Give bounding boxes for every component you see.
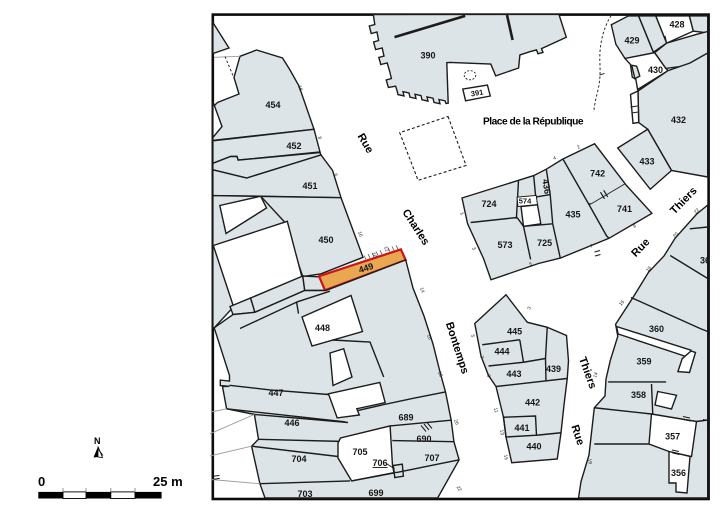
svg-text:704: 704 bbox=[291, 454, 306, 464]
svg-text:358: 358 bbox=[631, 390, 646, 400]
svg-text:699: 699 bbox=[368, 488, 383, 498]
svg-text:451: 451 bbox=[302, 181, 317, 191]
svg-text:14: 14 bbox=[418, 287, 426, 294]
svg-text:20: 20 bbox=[452, 419, 460, 426]
svg-text:428: 428 bbox=[669, 20, 684, 30]
svg-text:8: 8 bbox=[316, 136, 323, 141]
svg-text:690: 690 bbox=[416, 434, 431, 444]
svg-text:703: 703 bbox=[297, 489, 312, 499]
svg-text:1: 1 bbox=[458, 211, 465, 216]
svg-text:430: 430 bbox=[648, 65, 663, 75]
svg-text:12: 12 bbox=[382, 246, 390, 254]
svg-text:9: 9 bbox=[632, 223, 637, 230]
svg-text:439: 439 bbox=[546, 364, 561, 374]
svg-text:Charles: Charles bbox=[399, 207, 431, 247]
svg-text:11: 11 bbox=[492, 407, 499, 413]
svg-text:5: 5 bbox=[469, 334, 476, 338]
svg-text:574: 574 bbox=[519, 197, 532, 206]
svg-text:360: 360 bbox=[649, 324, 664, 334]
svg-text:3: 3 bbox=[526, 306, 533, 311]
svg-text:Rue: Rue bbox=[629, 236, 652, 259]
svg-text:357: 357 bbox=[665, 432, 680, 442]
svg-text:725: 725 bbox=[537, 238, 552, 248]
svg-text:433: 433 bbox=[639, 157, 654, 167]
svg-text:Rue: Rue bbox=[355, 132, 376, 156]
svg-text:442: 442 bbox=[525, 398, 540, 408]
svg-text:443: 443 bbox=[506, 369, 521, 379]
svg-text:432: 432 bbox=[671, 115, 686, 125]
svg-text:16: 16 bbox=[356, 231, 363, 238]
svg-text:452: 452 bbox=[286, 141, 301, 151]
svg-text:359: 359 bbox=[636, 357, 651, 367]
svg-text:25 m: 25 m bbox=[153, 474, 183, 489]
svg-text:447: 447 bbox=[268, 388, 283, 398]
svg-text:13: 13 bbox=[498, 429, 505, 436]
svg-text:16: 16 bbox=[618, 299, 626, 307]
svg-text:435: 435 bbox=[565, 210, 580, 220]
svg-text:4: 4 bbox=[552, 155, 557, 162]
svg-text:390: 390 bbox=[420, 51, 435, 61]
svg-text:742: 742 bbox=[590, 169, 605, 179]
svg-text:Bontemps: Bontemps bbox=[443, 321, 471, 376]
svg-text:741: 741 bbox=[617, 204, 632, 214]
svg-text:448: 448 bbox=[315, 323, 330, 333]
svg-text:454: 454 bbox=[265, 100, 280, 110]
svg-text:36: 36 bbox=[700, 256, 710, 266]
svg-text:724: 724 bbox=[481, 199, 496, 209]
svg-text:705: 705 bbox=[352, 447, 367, 457]
svg-text:706: 706 bbox=[372, 458, 387, 468]
svg-text:0: 0 bbox=[38, 474, 45, 489]
svg-text:441: 441 bbox=[514, 423, 529, 433]
svg-text:689: 689 bbox=[398, 413, 413, 423]
svg-text:6: 6 bbox=[332, 173, 339, 178]
svg-text:444: 444 bbox=[494, 347, 509, 357]
svg-text:429: 429 bbox=[624, 36, 639, 46]
svg-text:15: 15 bbox=[502, 454, 509, 461]
svg-text:707: 707 bbox=[424, 453, 439, 463]
svg-text:N: N bbox=[94, 436, 101, 446]
svg-text:3: 3 bbox=[470, 246, 477, 251]
svg-text:445: 445 bbox=[507, 327, 522, 337]
svg-text:446: 446 bbox=[284, 418, 299, 428]
svg-text:440: 440 bbox=[526, 442, 541, 452]
svg-text:450: 450 bbox=[318, 235, 333, 245]
svg-text:2: 2 bbox=[576, 144, 581, 151]
svg-text:Rue: Rue bbox=[568, 423, 586, 446]
svg-text:356: 356 bbox=[671, 468, 686, 478]
svg-text:Place de la République: Place de la République bbox=[483, 117, 584, 128]
svg-text:573: 573 bbox=[497, 240, 512, 250]
svg-text:22: 22 bbox=[455, 485, 463, 493]
